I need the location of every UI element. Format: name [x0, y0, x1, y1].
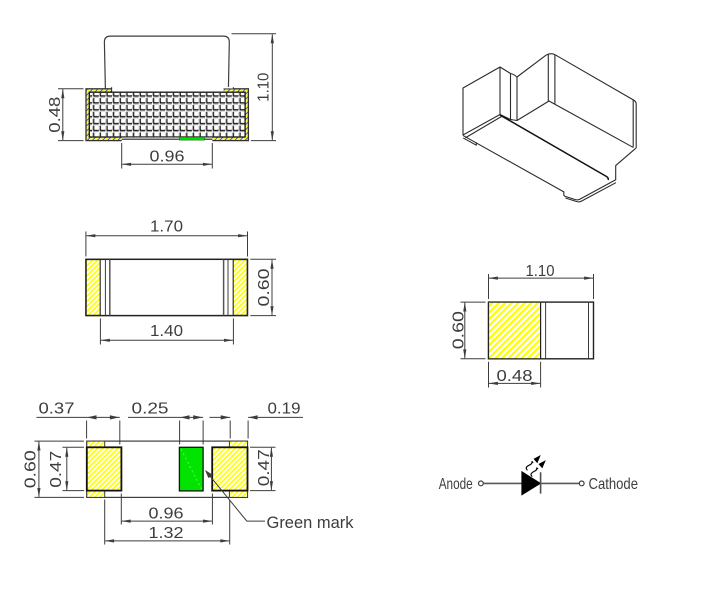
- svg-text:0.96: 0.96: [149, 505, 184, 522]
- svg-text:0.48: 0.48: [47, 97, 64, 133]
- svg-text:0.25: 0.25: [132, 400, 169, 417]
- svg-text:0.60: 0.60: [256, 268, 273, 306]
- svg-text:1.10: 1.10: [256, 73, 273, 102]
- svg-text:1.40: 1.40: [150, 323, 183, 340]
- svg-text:1.70: 1.70: [150, 219, 183, 236]
- svg-text:0.60: 0.60: [451, 311, 468, 349]
- svg-text:0.47: 0.47: [256, 449, 273, 486]
- svg-text:0.60: 0.60: [23, 450, 40, 488]
- svg-text:Cathode: Cathode: [589, 476, 639, 493]
- svg-text:1.32: 1.32: [149, 525, 184, 542]
- svg-text:0.47: 0.47: [48, 451, 65, 488]
- svg-text:0.96: 0.96: [150, 148, 185, 165]
- svg-text:0.19: 0.19: [268, 400, 301, 417]
- svg-text:0.48: 0.48: [497, 368, 533, 385]
- svg-text:Anode: Anode: [439, 476, 473, 493]
- svg-text:1.10: 1.10: [526, 263, 555, 280]
- svg-text:Green mark: Green mark: [267, 514, 355, 532]
- svg-text:0.37: 0.37: [39, 400, 75, 417]
